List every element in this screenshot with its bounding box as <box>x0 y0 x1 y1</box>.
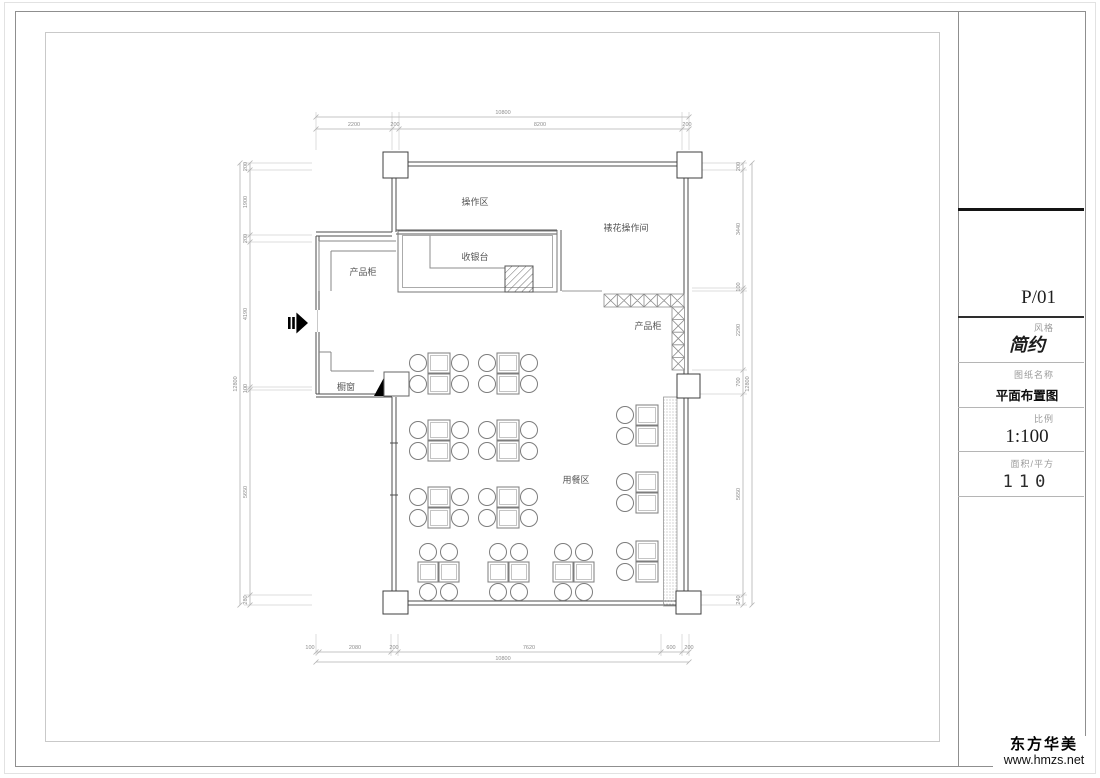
label-operation-area: 操作区 <box>461 196 488 207</box>
wall-table <box>617 405 659 446</box>
dim-top-seg: 200 <box>390 122 399 128</box>
label-dining-area: 用餐区 <box>562 474 589 485</box>
wall-table <box>617 472 659 513</box>
bench-band <box>664 397 678 606</box>
dim-left-seg: 5650 <box>243 486 249 498</box>
watermark-brand: 东方华美 <box>993 736 1095 753</box>
column <box>677 152 702 178</box>
title-block-rule <box>958 362 1084 363</box>
dim-bottom-seg: 200 <box>684 645 693 651</box>
dim-bottom-seg: 600 <box>666 645 675 651</box>
dim-right-seg: 200 <box>736 162 742 171</box>
dining-table <box>553 544 594 601</box>
dim-right-seg: 700 <box>736 377 742 386</box>
dim-left-seg: 1900 <box>243 196 249 208</box>
cashier-hatch-block <box>505 266 533 292</box>
sheet-code: P/01 <box>958 284 1056 312</box>
dim-bottom-seg: 2080 <box>349 645 361 651</box>
drawing-name-value: 平面布置图 <box>958 387 1084 405</box>
dim-left-seg: 100 <box>243 384 249 393</box>
label-display-window: 橱窗 <box>337 381 355 392</box>
area-value: 110 <box>958 470 1084 494</box>
entrance-arrow-icon <box>288 313 308 334</box>
column <box>677 374 700 398</box>
dim-right-seg: 240 <box>736 595 742 604</box>
label-cashier: 收银台 <box>461 251 488 262</box>
dim-top-seg: 200 <box>682 122 691 128</box>
dim-bottom-seg: 7620 <box>523 645 535 651</box>
dim-left-seg: 200 <box>243 234 249 243</box>
dim-left-seg: 200 <box>243 162 249 171</box>
dim-right-seg: 5650 <box>736 488 742 500</box>
watermark: 东方华美 www.hmzs.net <box>993 736 1095 768</box>
dining-table <box>479 487 538 528</box>
scale-label: 比例 <box>958 412 1054 425</box>
dining-tables <box>410 353 659 601</box>
product-cabinet-left <box>319 241 396 291</box>
label-decorating-room: 裱花操作间 <box>603 222 648 233</box>
dim-left-total: 12800 <box>233 376 239 391</box>
label-product-cabinet-left: 产品柜 <box>349 266 376 277</box>
column <box>676 591 701 614</box>
dim-left-seg: 4190 <box>243 308 249 320</box>
label-product-cabinet-right: 产品柜 <box>634 320 661 331</box>
dim-top-seg: 8200 <box>534 122 546 128</box>
window-mullion <box>390 443 398 495</box>
dim-bottom-seg: 200 <box>389 645 398 651</box>
dim-bottom-seg: 100 <box>305 645 314 651</box>
dim-right-seg: 2290 <box>736 324 742 336</box>
dining-table <box>488 544 529 601</box>
product-cabinet-right-units <box>604 294 685 370</box>
dining-table <box>418 544 459 601</box>
style-value: 简约 <box>958 332 1084 360</box>
title-block-rule <box>958 407 1084 408</box>
dining-table <box>410 420 469 461</box>
dim-top-seg: 2200 <box>348 122 360 128</box>
dim-top-total: 10800 <box>495 110 510 116</box>
dining-table <box>479 353 538 394</box>
watermark-url: www.hmzs.net <box>993 753 1095 768</box>
dining-table <box>479 420 538 461</box>
dim-right-seg: 3440 <box>736 223 742 235</box>
dim-left-seg: 280 <box>243 595 249 604</box>
wall-table <box>617 541 659 582</box>
floor-plan: 10800 2200 200 8200 200 100 2080 200 762… <box>0 0 1100 778</box>
dining-table <box>410 487 469 528</box>
column <box>383 591 408 614</box>
column <box>383 152 408 178</box>
dining-table <box>410 353 469 394</box>
title-block-heavy-rule <box>958 208 1084 211</box>
title-block-rule <box>958 316 1084 318</box>
title-block-rule <box>958 451 1084 452</box>
drawing-name-label: 图纸名称 <box>958 368 1054 381</box>
display-window-counter <box>319 352 409 396</box>
dim-right-seg: 100 <box>736 282 742 291</box>
title-block-rule <box>958 496 1084 497</box>
dim-bottom-total: 10800 <box>495 656 510 662</box>
dim-right-total: 12800 <box>745 376 751 391</box>
area-label: 面积/平方 <box>958 457 1054 470</box>
scale-value: 1:100 <box>958 425 1084 449</box>
